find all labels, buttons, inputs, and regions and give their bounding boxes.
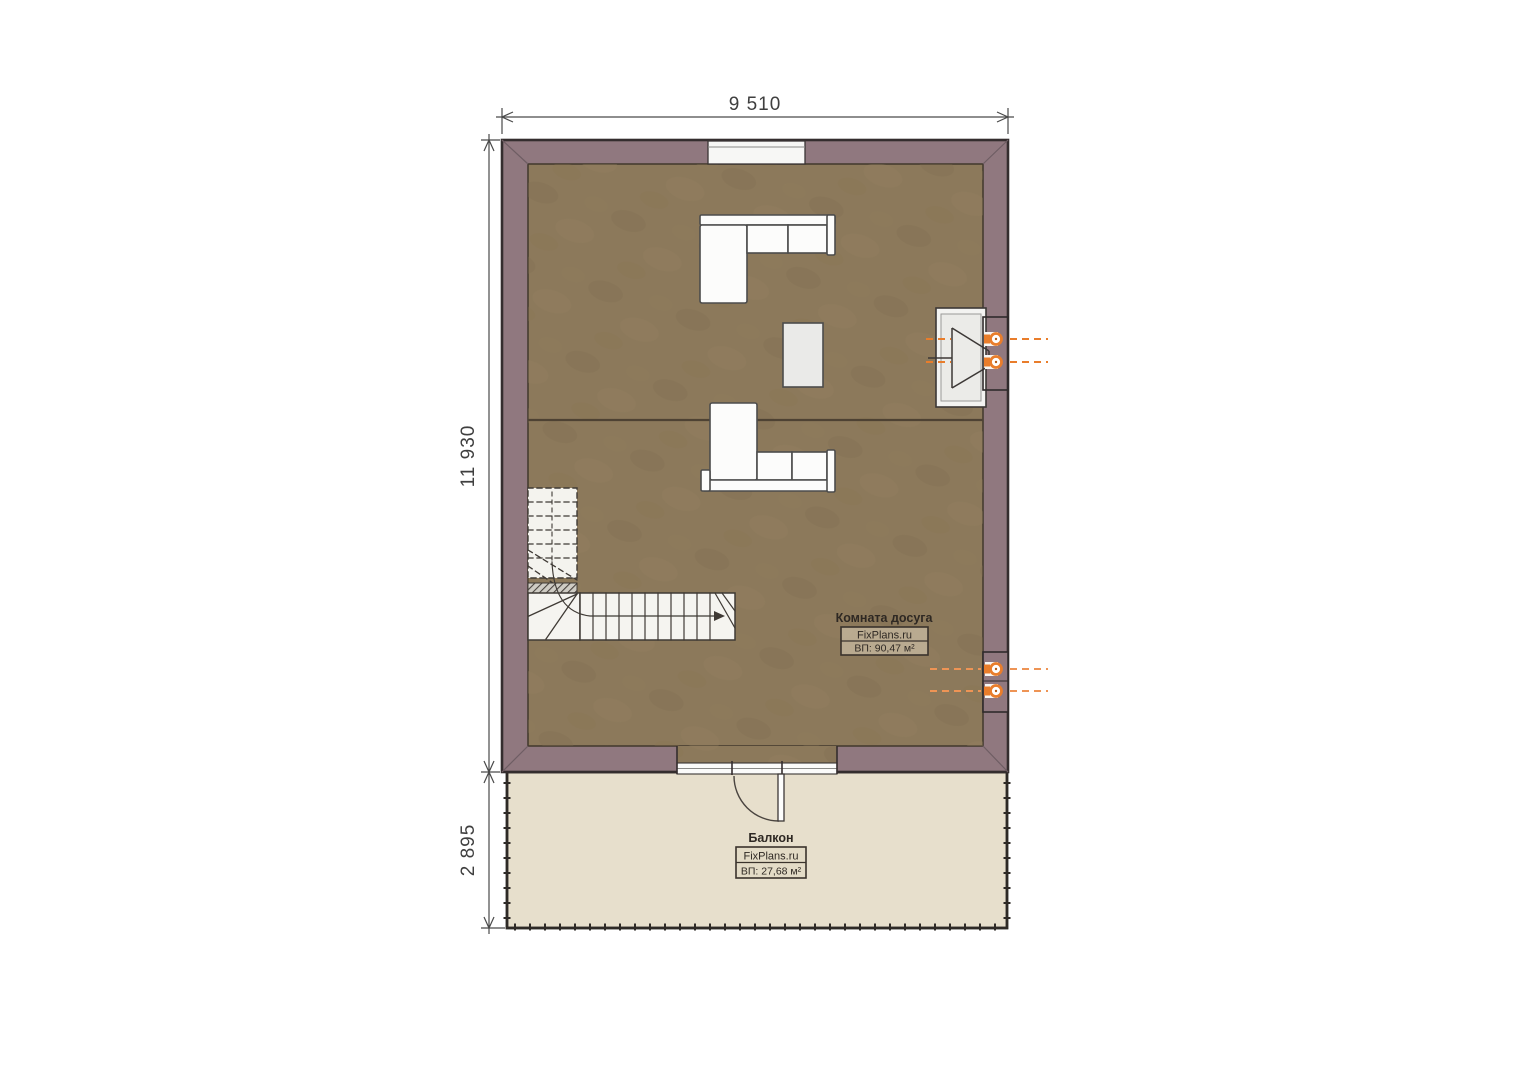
vent-icon [984, 684, 1002, 698]
sofa-back [703, 480, 833, 491]
vent-icon [984, 355, 1002, 369]
stair-winder [528, 593, 580, 640]
room-label-leisure: Комната досуга FixPlans.ru ВП: 90,47 м² [836, 611, 934, 655]
sofa-armrest [827, 215, 835, 255]
floor-plan-drawing: Комната досуга FixPlans.ru ВП: 90,47 м² … [0, 0, 1528, 1080]
vent-icon [984, 332, 1002, 346]
bottom-glazing [677, 746, 837, 775]
room-name: Балкон [748, 831, 793, 845]
coffee-table [783, 323, 823, 387]
vent-wall-box [983, 652, 1008, 712]
room-brand: FixPlans.ru [857, 630, 912, 642]
room-area: ВП: 27,68 м² [741, 866, 802, 878]
sofa-seat [792, 452, 827, 480]
dimension-label-left-balcony: 2 895 [458, 824, 479, 877]
dimension-label-left-main: 11 930 [458, 425, 479, 488]
room-brand: FixPlans.ru [743, 851, 798, 863]
door-leaf [778, 774, 784, 821]
vent-icon [984, 662, 1002, 676]
dimension-label-top: 9 510 [729, 94, 782, 115]
room-name: Комната досуга [836, 611, 934, 625]
room-area: ВП: 90,47 м² [854, 643, 915, 655]
sofa-chaise [700, 225, 747, 303]
sofa-seat [747, 225, 788, 253]
sofa-chaise [710, 403, 757, 480]
top-window [708, 141, 805, 164]
sofa-armrest [827, 450, 835, 492]
floor-plan-canvas: Комната досуга FixPlans.ru ВП: 90,47 м² … [0, 0, 1528, 1080]
sofa-seat [757, 452, 792, 480]
sofa-seat [788, 225, 827, 253]
sofa-armrest [701, 470, 710, 491]
stair-sill-hatch [528, 583, 577, 593]
sofa-back [700, 215, 835, 225]
